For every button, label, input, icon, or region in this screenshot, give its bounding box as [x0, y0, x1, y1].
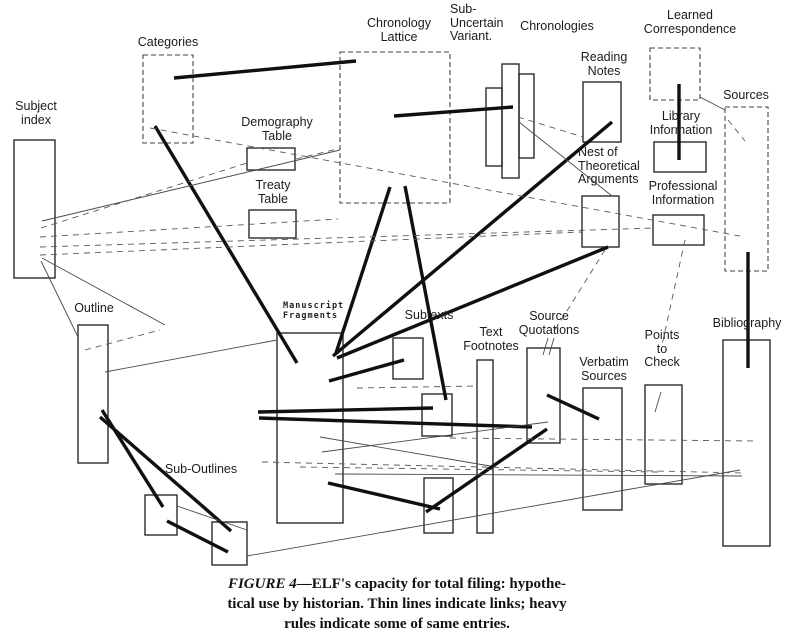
nest-of-theoretical-arguments-label-line-2: Theoretical — [578, 160, 640, 174]
points-to-check-label: PointstoCheck — [644, 329, 679, 370]
caption-figure-label: FIGURE 4 — [228, 576, 297, 592]
sources-label: Sources — [723, 89, 769, 103]
treaty-table-label-line-2: Table — [256, 193, 291, 207]
nest-of-theoretical-arguments-label-line-1: Nest of — [578, 146, 640, 160]
professional-information-label-line-2: Information — [649, 194, 718, 208]
verbatim-sources-label-line-1: Verbatim — [579, 356, 628, 370]
treaty-table-label: TreatyTable — [256, 179, 291, 206]
manuscript-fragments-label-line-1: Manuscript — [283, 301, 344, 311]
sub-uncertain-variant-label-line-1: Sub- — [450, 3, 504, 17]
subtexts-label: Subtexts — [405, 309, 454, 323]
subject-index-label: Subjectindex — [15, 100, 57, 127]
library-information-label-line-2: Information — [650, 124, 713, 138]
subtexts-label-line-1: Subtexts — [405, 309, 454, 323]
text-footnotes-label-line-2: Footnotes — [463, 340, 519, 354]
categories-label-line-1: Categories — [138, 36, 198, 50]
sources-label-line-1: Sources — [723, 89, 769, 103]
reading-notes-label-line-2: Notes — [581, 65, 628, 79]
bibliography-label-line-1: Bibliography — [713, 317, 782, 331]
chronologies-label-line-1: Chronologies — [520, 20, 594, 34]
treaty-table-label-line-1: Treaty — [256, 179, 291, 193]
source-quotations-label: SourceQuotations — [519, 310, 579, 337]
source-quotations-label-line-2: Quotations — [519, 324, 579, 338]
caption-line-1: FIGURE 4—ELF's capacity for total filing… — [157, 574, 637, 594]
figure-caption: FIGURE 4—ELF's capacity for total filing… — [157, 574, 637, 634]
demography-table-label: DemographyTable — [241, 116, 313, 143]
library-information-label: LibraryInformation — [650, 110, 713, 137]
categories-label: Categories — [138, 36, 198, 50]
label-layer: SubjectindexCategoriesDemographyTableTre… — [0, 0, 794, 634]
sub-outlines-label-line-1: Sub-Outlines — [165, 463, 237, 477]
points-to-check-label-line-3: Check — [644, 356, 679, 370]
figure-page: SubjectindexCategoriesDemographyTableTre… — [0, 0, 794, 634]
sub-uncertain-variant-label-line-2: Uncertain — [450, 17, 504, 31]
chronology-lattice-label: ChronologyLattice — [367, 17, 431, 44]
subject-index-label-line-1: Subject — [15, 100, 57, 114]
outline-label-line-1: Outline — [74, 302, 114, 316]
learned-correspondence-label-line-1: Learned — [644, 9, 736, 23]
learned-correspondence-label-line-2: Correspondence — [644, 23, 736, 37]
outline-label: Outline — [74, 302, 114, 316]
text-footnotes-label-line-1: Text — [463, 326, 519, 340]
verbatim-sources-label-line-2: Sources — [579, 370, 628, 384]
learned-correspondence-label: LearnedCorrespondence — [644, 9, 736, 36]
bibliography-label: Bibliography — [713, 317, 782, 331]
source-quotations-label-line-1: Source — [519, 310, 579, 324]
demography-table-label-line-2: Table — [241, 130, 313, 144]
reading-notes-label: ReadingNotes — [581, 51, 628, 78]
caption-line-2: tical use by historian. Thin lines indic… — [157, 594, 637, 614]
library-information-label-line-1: Library — [650, 110, 713, 124]
manuscript-fragments-label-line-2: Fragments — [283, 311, 344, 321]
points-to-check-label-line-1: Points — [644, 329, 679, 343]
text-footnotes-label: TextFootnotes — [463, 326, 519, 353]
professional-information-label: ProfessionalInformation — [649, 180, 718, 207]
caption-line-1-rest: —ELF's capacity for total filing: hypoth… — [297, 576, 566, 592]
professional-information-label-line-1: Professional — [649, 180, 718, 194]
chronology-lattice-label-line-1: Chronology — [367, 17, 431, 31]
chronologies-label: Chronologies — [520, 20, 594, 34]
nest-of-theoretical-arguments-label: Nest ofTheoreticalArguments — [578, 146, 640, 187]
sub-uncertain-variant-label: Sub-UncertainVariant. — [450, 3, 504, 44]
demography-table-label-line-1: Demography — [241, 116, 313, 130]
chronology-lattice-label-line-2: Lattice — [367, 31, 431, 45]
nest-of-theoretical-arguments-label-line-3: Arguments — [578, 173, 640, 187]
points-to-check-label-line-2: to — [644, 343, 679, 357]
subject-index-label-line-2: index — [15, 114, 57, 128]
verbatim-sources-label: VerbatimSources — [579, 356, 628, 383]
sub-uncertain-variant-label-line-3: Variant. — [450, 30, 504, 44]
reading-notes-label-line-1: Reading — [581, 51, 628, 65]
caption-line-3: rules indicate some of same entries. — [157, 614, 637, 634]
sub-outlines-label: Sub-Outlines — [165, 463, 237, 477]
manuscript-fragments-label: ManuscriptFragments — [283, 301, 344, 321]
